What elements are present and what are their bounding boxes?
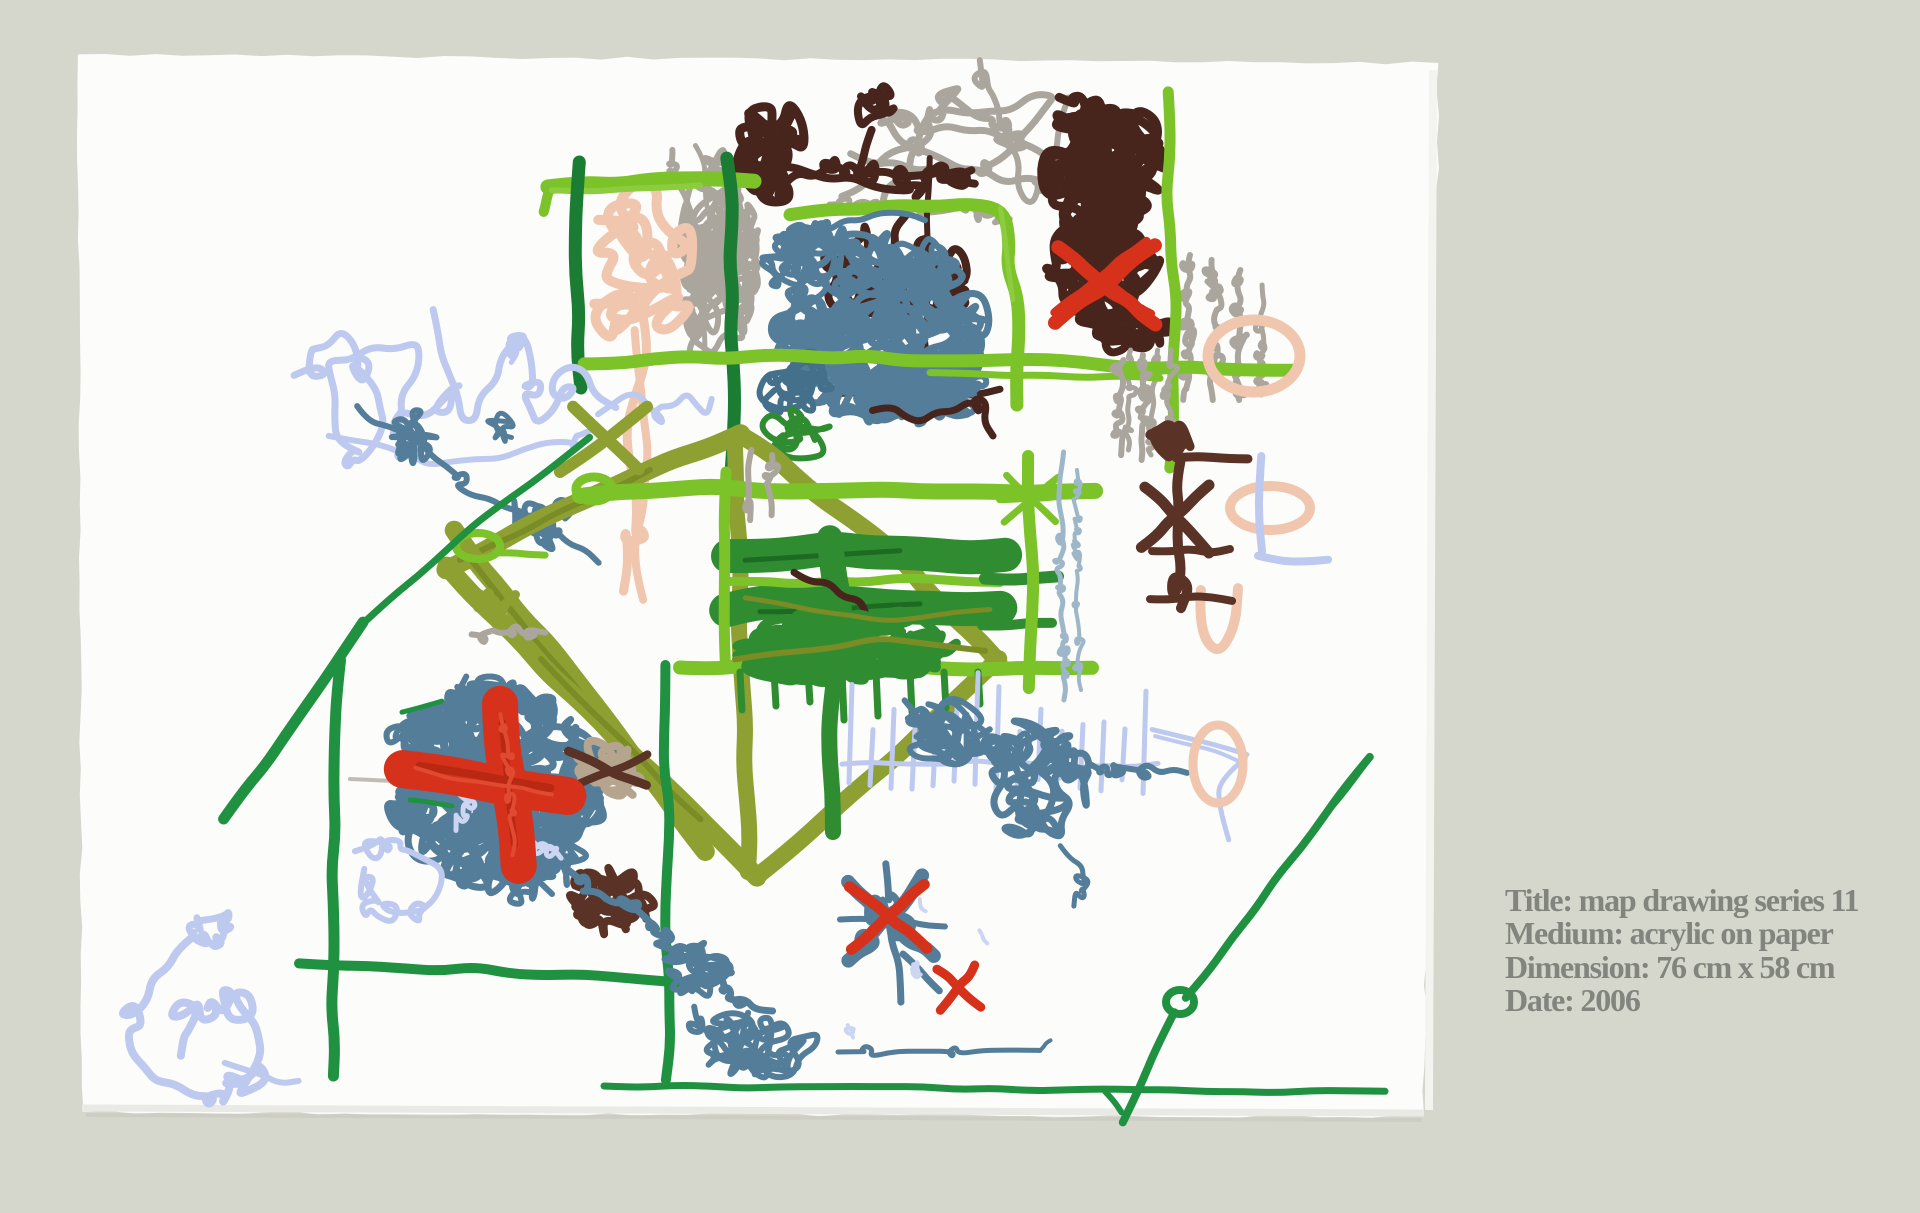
svg-text:Title: map drawing series 11: Title: map drawing series 11 — [1505, 882, 1859, 918]
svg-text:Date: 2006: Date: 2006 — [1505, 982, 1641, 1018]
svg-text:Medium: acrylic on paper: Medium: acrylic on paper — [1505, 915, 1834, 951]
svg-text:Dimension: 76 cm x 58 cm: Dimension: 76 cm x 58 cm — [1505, 949, 1836, 985]
